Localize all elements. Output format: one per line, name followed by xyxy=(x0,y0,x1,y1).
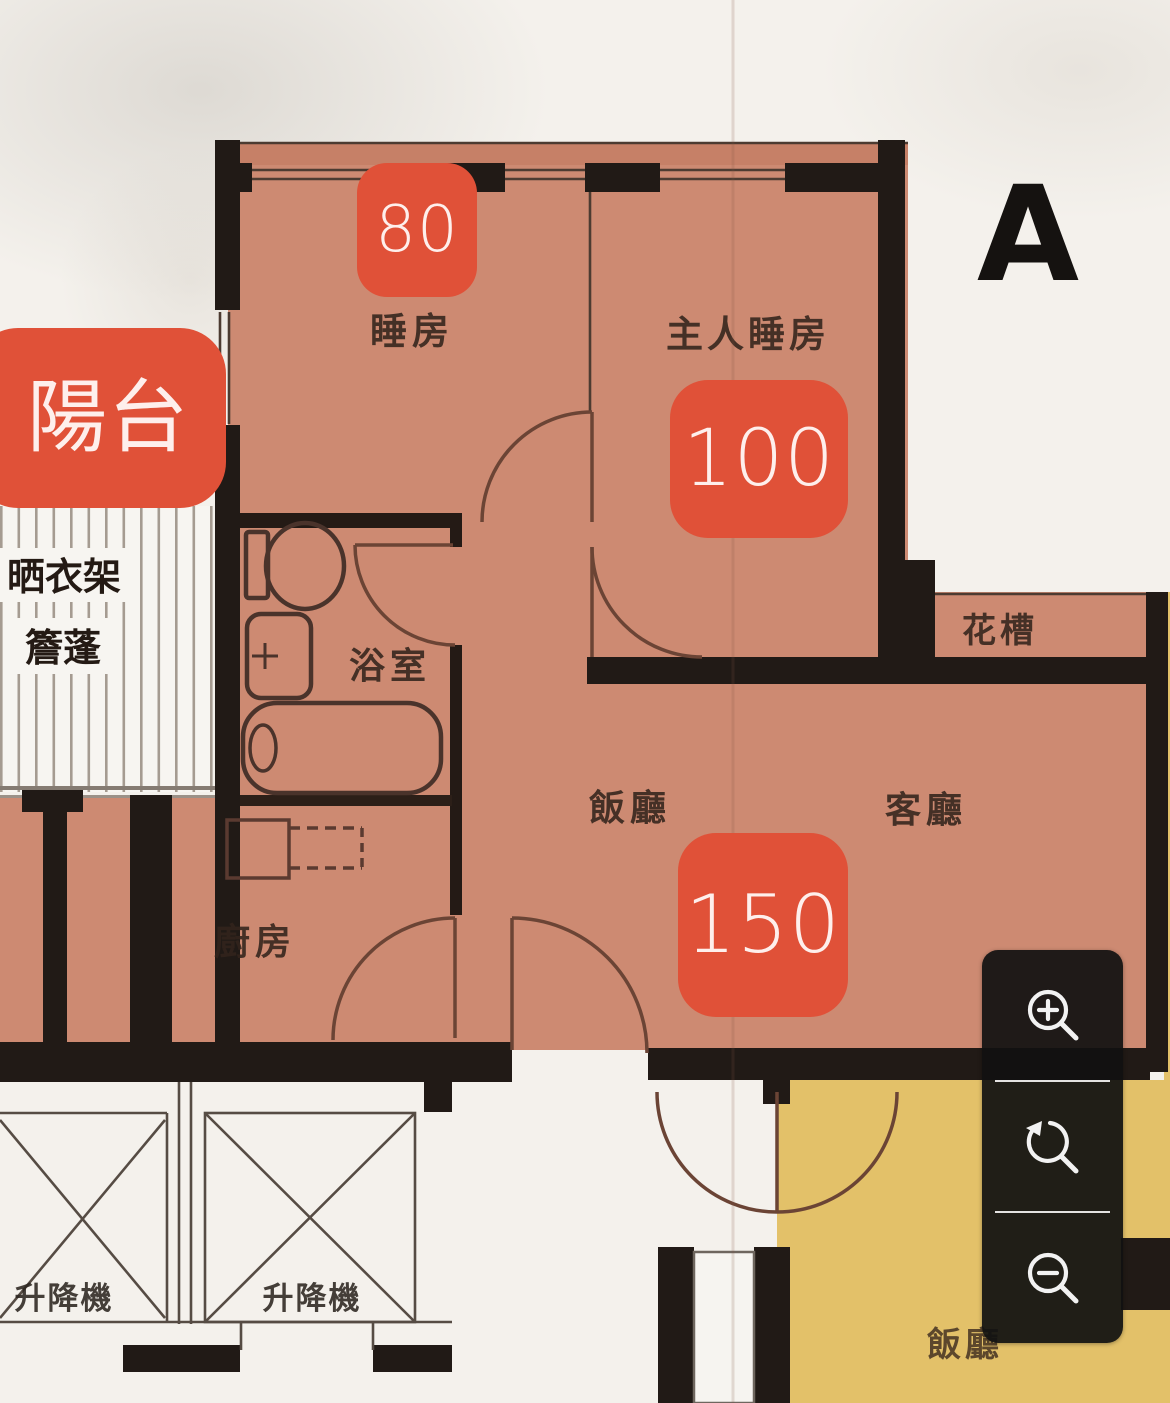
unit-letter: A xyxy=(977,158,1079,312)
label-kitchen: 廚房 xyxy=(214,921,296,963)
zoom-in-icon xyxy=(1020,982,1086,1048)
neighbor-door xyxy=(694,1252,754,1403)
label-lift-left: 升降機 xyxy=(15,1281,114,1317)
label-bathroom: 浴室 xyxy=(349,646,431,687)
balcony-chip[interactable]: 陽台 xyxy=(0,328,226,508)
floorplan-viewer: 睡房 主人睡房 浴室 廚房 飯廳 客廳 花槽 升降機 升降機 飯廳 晒衣架 簷蓬… xyxy=(0,0,1170,1403)
zoom-in-button[interactable] xyxy=(982,950,1123,1080)
living-room-size-value: 150 xyxy=(685,885,841,965)
label-dining: 飯廳 xyxy=(589,787,671,829)
label-drying-rack: 晒衣架 xyxy=(7,555,121,599)
master-bedroom-size-value: 100 xyxy=(683,420,835,498)
master-bedroom-size-chip[interactable]: 100 xyxy=(670,380,848,538)
zoom-out-button[interactable] xyxy=(982,1213,1123,1343)
map-controls-panel xyxy=(982,950,1123,1343)
reset-view-icon xyxy=(1020,1114,1086,1180)
label-bedroom: 睡房 xyxy=(370,310,454,353)
label-living: 客廳 xyxy=(885,789,967,831)
bedroom-size-value: 80 xyxy=(375,198,458,262)
label-canopy: 簷蓬 xyxy=(25,626,101,670)
label-lift-right: 升降機 xyxy=(263,1281,362,1317)
living-room-size-chip[interactable]: 150 xyxy=(678,833,848,1017)
bedroom-size-chip[interactable]: 80 xyxy=(357,163,477,297)
reset-view-button[interactable] xyxy=(982,1082,1123,1212)
balcony-chip-label: 陽台 xyxy=(27,378,189,458)
label-planter: 花槽 xyxy=(962,611,1038,651)
label-master-bedroom: 主人睡房 xyxy=(666,313,830,356)
zoom-out-icon xyxy=(1020,1245,1086,1311)
